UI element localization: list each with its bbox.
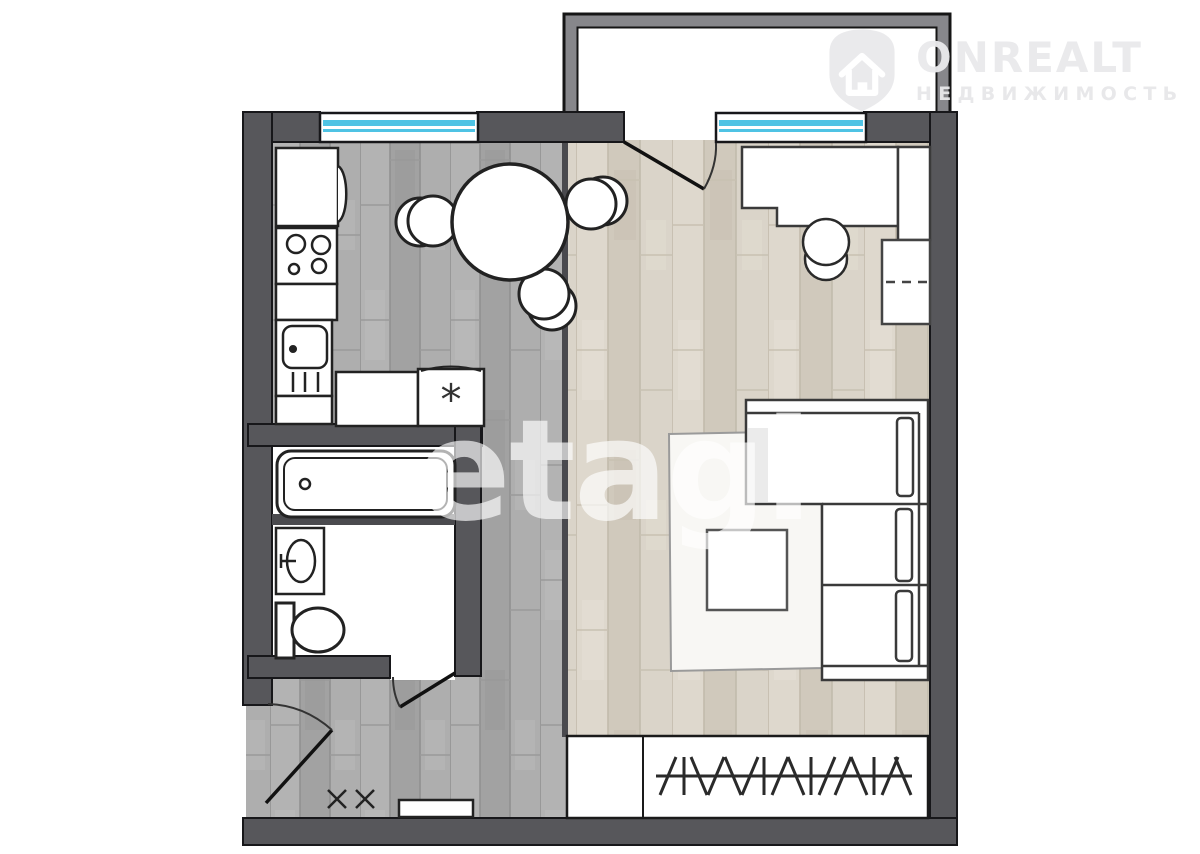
washing-machine: *: [418, 367, 484, 427]
fridge: [276, 148, 346, 226]
living-room-window: [716, 113, 866, 142]
kitchen-window: [320, 113, 478, 142]
floor-plan-image: *: [0, 0, 1200, 854]
desk-side-cabinet: [898, 147, 930, 240]
coffee-table: [707, 530, 787, 610]
bathroom-right-wall: [455, 424, 481, 676]
right-wall: [930, 112, 957, 845]
wardrobe: [567, 736, 928, 818]
bathroom-bottom-wall: [248, 656, 390, 678]
dining-chair: [566, 179, 616, 229]
washing-machine-mark: *: [441, 375, 462, 424]
washbasin: [276, 528, 324, 594]
counter-segment: [276, 284, 337, 320]
floor-plan-drawing: *: [0, 0, 1200, 854]
balcony: [564, 14, 950, 118]
shelf-cabinet: [882, 240, 930, 324]
desk-chair: [803, 219, 849, 280]
bathtub: [277, 451, 455, 517]
left-wall: [243, 112, 272, 705]
kitchen-bathroom-wall: [248, 424, 482, 446]
dining-table: [452, 164, 568, 280]
counter-segment: [276, 396, 332, 424]
stove: [276, 228, 337, 284]
bottom-wall: [243, 818, 957, 845]
top-wall-center-pier: [477, 112, 624, 142]
doormat: [399, 800, 473, 817]
kitchen-sink: [276, 320, 332, 396]
countertop: [336, 372, 418, 426]
